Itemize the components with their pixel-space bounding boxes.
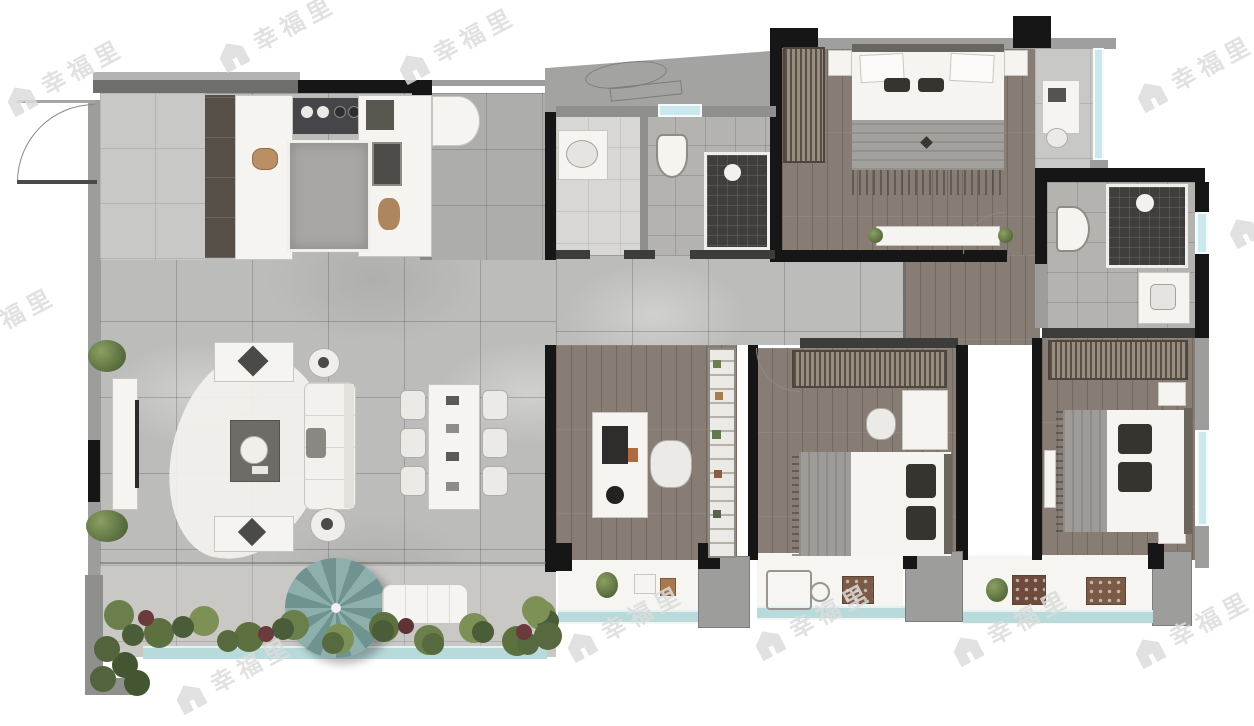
- shrub-accent-red: [138, 610, 154, 626]
- wall-bedroom3-left: [1032, 338, 1042, 560]
- coffee-machine: [366, 100, 394, 130]
- shower-head: [724, 164, 741, 181]
- toilet: [656, 134, 688, 178]
- wall-balcony-black: [1148, 543, 1164, 569]
- watermark-text: 幸福里: [0, 277, 62, 350]
- bookshelf-item: [714, 470, 722, 478]
- dining-table-item: [446, 452, 459, 461]
- bedroom2-bed-fringe: [792, 452, 799, 556]
- balcony-plant: [986, 578, 1008, 602]
- entry-door-frame: [17, 100, 95, 103]
- coffee-table-book: [252, 466, 268, 474]
- wall-bedroom2-left: [748, 345, 758, 560]
- dining-chair: [482, 466, 508, 496]
- wall-kitchen-top: [93, 80, 300, 93]
- stove-burner: [317, 106, 329, 118]
- floor-hallway-wood: [905, 255, 1040, 345]
- dining-table-item: [446, 424, 459, 433]
- bedroom2-wardrobe: [792, 350, 947, 388]
- balcony-rug: [1086, 577, 1126, 605]
- kitchen-sink: [252, 148, 278, 170]
- dining-table-item: [446, 396, 459, 405]
- sofa-back: [344, 384, 354, 508]
- wall-bathroom-left: [545, 112, 556, 260]
- house-icon: [559, 623, 601, 665]
- house-icon: [945, 627, 987, 669]
- wall-bathroom-divider: [640, 115, 648, 255]
- balcony-table: [1012, 575, 1046, 605]
- wall-bedroom3-right-lower: [1195, 526, 1209, 568]
- laundry-cabinet: [432, 96, 480, 146]
- watermark: 幸福里: [390, 0, 522, 89]
- laptop: [602, 426, 628, 464]
- bedroom2-pillow: [906, 506, 936, 540]
- study-chair: [650, 440, 692, 488]
- balcony-table-sketch: [766, 570, 812, 610]
- floor-transition-line: [903, 255, 905, 345]
- bedroom2-bed-headboard: [944, 454, 952, 554]
- wall-bedroom3-top: [1042, 328, 1195, 338]
- watermark-text: 幸福里: [246, 0, 342, 58]
- master-bed-headboard: [852, 44, 1004, 52]
- master-pillow: [949, 53, 994, 83]
- lounge-chair: [382, 584, 468, 624]
- house-icon: [168, 675, 210, 717]
- watermark: 幸福里: [0, 277, 62, 369]
- wall-left-black: [88, 440, 100, 502]
- wall-ensuite-top: [1035, 168, 1205, 182]
- bedroom3-window: [1197, 430, 1208, 526]
- wall-balcony-foot: [85, 678, 142, 695]
- bedroom2-bed: [851, 452, 951, 556]
- watermark-text: 幸福里: [1164, 25, 1254, 98]
- plant-pot: [998, 228, 1013, 243]
- dining-chair: [400, 466, 426, 496]
- wall-bathroom-bottom: [690, 250, 775, 259]
- dining-chair: [400, 428, 426, 458]
- bedroom3-bed-headboard: [1184, 408, 1192, 534]
- floor-plan: 幸福里 幸福里 幸福里 幸福里 幸福里 幸福里 幸福里 幸福里 幸福里 幸福里 …: [0, 0, 1254, 726]
- side-pouf-center: [321, 518, 333, 530]
- balcony-plant: [596, 572, 618, 598]
- ensuite-window: [1196, 212, 1208, 254]
- bedroom3-pillow: [1118, 462, 1152, 492]
- bedroom3-pillow: [1118, 424, 1152, 454]
- bedroom3-wardrobe: [1048, 340, 1188, 380]
- house-icon: [1129, 73, 1171, 115]
- wall-bathroom-bottom: [624, 250, 655, 259]
- bathroom-basin: [1150, 284, 1176, 310]
- kitchen-island: [287, 140, 371, 252]
- study-balcony-railing: [558, 610, 698, 622]
- bathroom-basin: [566, 140, 598, 168]
- master-wardrobe: [783, 47, 825, 163]
- entry-door-swing-arc: [17, 104, 95, 182]
- coffee-table-tray: [240, 436, 268, 464]
- sofa-throw: [306, 428, 326, 458]
- shrub-row-dark: [122, 624, 144, 646]
- dining-chair: [400, 390, 426, 420]
- kitchen-counter-left: [235, 95, 293, 260]
- plant-pot: [88, 340, 126, 372]
- house-icon: [211, 33, 253, 75]
- balcony-stool-sketch: [810, 582, 830, 602]
- wall-ensuite-left-door: [1035, 264, 1047, 328]
- watermark: 幸福里: [1220, 161, 1254, 253]
- house-icon: [0, 77, 41, 119]
- umbrella-pole: [331, 603, 341, 613]
- bookshelf-item: [713, 360, 721, 368]
- wall-column-black: [1013, 16, 1051, 48]
- master-tv-bench: [876, 226, 1000, 246]
- wall-foyer-top: [432, 80, 545, 86]
- dining-chair: [482, 390, 508, 420]
- wall-bedroom2-right: [956, 345, 968, 560]
- counter-decor: [378, 198, 400, 230]
- watermark: 幸福里: [210, 0, 342, 77]
- dressing-table-item: [1048, 88, 1066, 102]
- bookshelf-item: [715, 392, 723, 400]
- stove-burner: [334, 106, 346, 118]
- wall-bathroom-bottom: [556, 250, 590, 259]
- floor-entry-foyer: [100, 93, 205, 260]
- wall-study-left: [545, 345, 556, 572]
- wall-ensuite-right-lower: [1195, 254, 1209, 338]
- bookshelf: [708, 348, 736, 558]
- balcony-chair: [660, 578, 676, 596]
- wall-top-ledge: [93, 72, 300, 80]
- wall-bedroom2-top: [800, 338, 958, 348]
- wall-master-left: [770, 48, 782, 262]
- bedroom2-bed-blanket: [799, 452, 851, 556]
- bedroom2-chair: [866, 408, 896, 440]
- nightstand: [828, 50, 852, 76]
- master-accent-pillow: [918, 78, 944, 92]
- nightstand: [1158, 382, 1186, 406]
- wall-master-corner: [770, 28, 818, 48]
- watermark: 幸福里: [1128, 25, 1254, 117]
- dining-chair: [482, 428, 508, 458]
- plant-pot: [86, 510, 128, 542]
- house-icon: [747, 621, 789, 663]
- desk-book: [628, 448, 638, 462]
- tv: [135, 400, 139, 488]
- bedroom3-bed-fringe: [1056, 410, 1063, 532]
- nightstand: [1004, 50, 1028, 76]
- entry-door-leaf: [17, 180, 97, 184]
- watermark-text: 幸福里: [426, 0, 522, 70]
- master-accent-pillow: [884, 78, 910, 92]
- bedroom3-bed-blanket: [1063, 410, 1107, 532]
- toilet: [1056, 206, 1090, 252]
- balcony-rug: [842, 576, 874, 604]
- side-pouf-center: [318, 357, 329, 368]
- dining-table-item: [446, 482, 459, 491]
- shower-head: [1136, 194, 1154, 212]
- wall-balcony-left: [85, 575, 103, 695]
- wall-ensuite-left: [1035, 182, 1047, 264]
- wall-balcony-black: [556, 543, 572, 571]
- bedroom2-desk: [902, 390, 948, 450]
- dressing-chair: [1046, 128, 1068, 148]
- plant-pot: [868, 228, 883, 243]
- shrub-right-bush: [522, 596, 550, 624]
- shrub-corner-cluster: [94, 636, 120, 662]
- built-in-oven: [372, 142, 402, 186]
- balcony-table: [634, 574, 656, 594]
- floor-hallway-marble: [556, 255, 905, 345]
- wall-ensuite-right: [1195, 182, 1209, 212]
- master-bed-fringe: [852, 170, 1004, 195]
- wall-bedroom3-right: [1195, 338, 1209, 430]
- stove-burner: [301, 106, 313, 118]
- bathroom-window: [658, 104, 702, 117]
- house-icon: [1127, 629, 1169, 671]
- bedroom2-pillow: [906, 464, 936, 498]
- master-window: [1093, 48, 1104, 160]
- bookshelf-item: [712, 430, 721, 439]
- fridge-cabinet: [205, 95, 235, 258]
- bookshelf-item: [713, 510, 721, 518]
- bedroom3-bench: [1044, 450, 1056, 508]
- bedroom3-balcony-railing: [963, 610, 1153, 623]
- house-icon: [1221, 209, 1254, 251]
- desk-decor: [606, 486, 624, 504]
